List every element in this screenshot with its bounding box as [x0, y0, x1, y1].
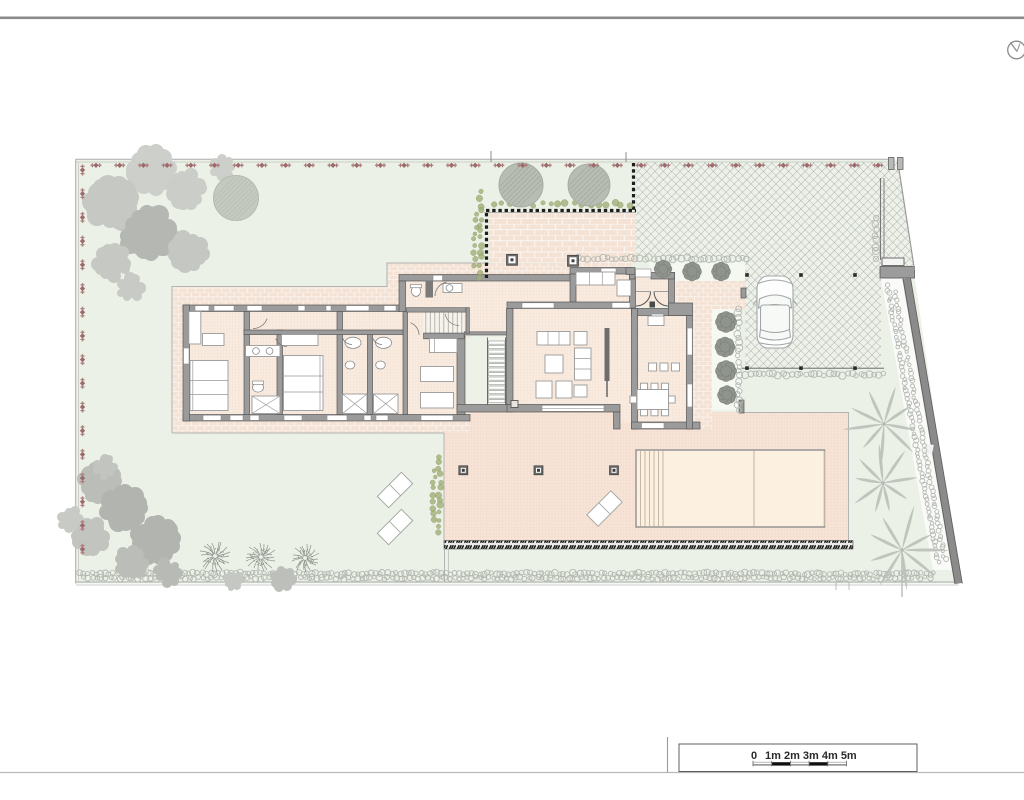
svg-text:1m 2m 3m 4m 5m: 1m 2m 3m 4m 5m — [765, 750, 857, 762]
svg-text:0: 0 — [751, 750, 757, 762]
